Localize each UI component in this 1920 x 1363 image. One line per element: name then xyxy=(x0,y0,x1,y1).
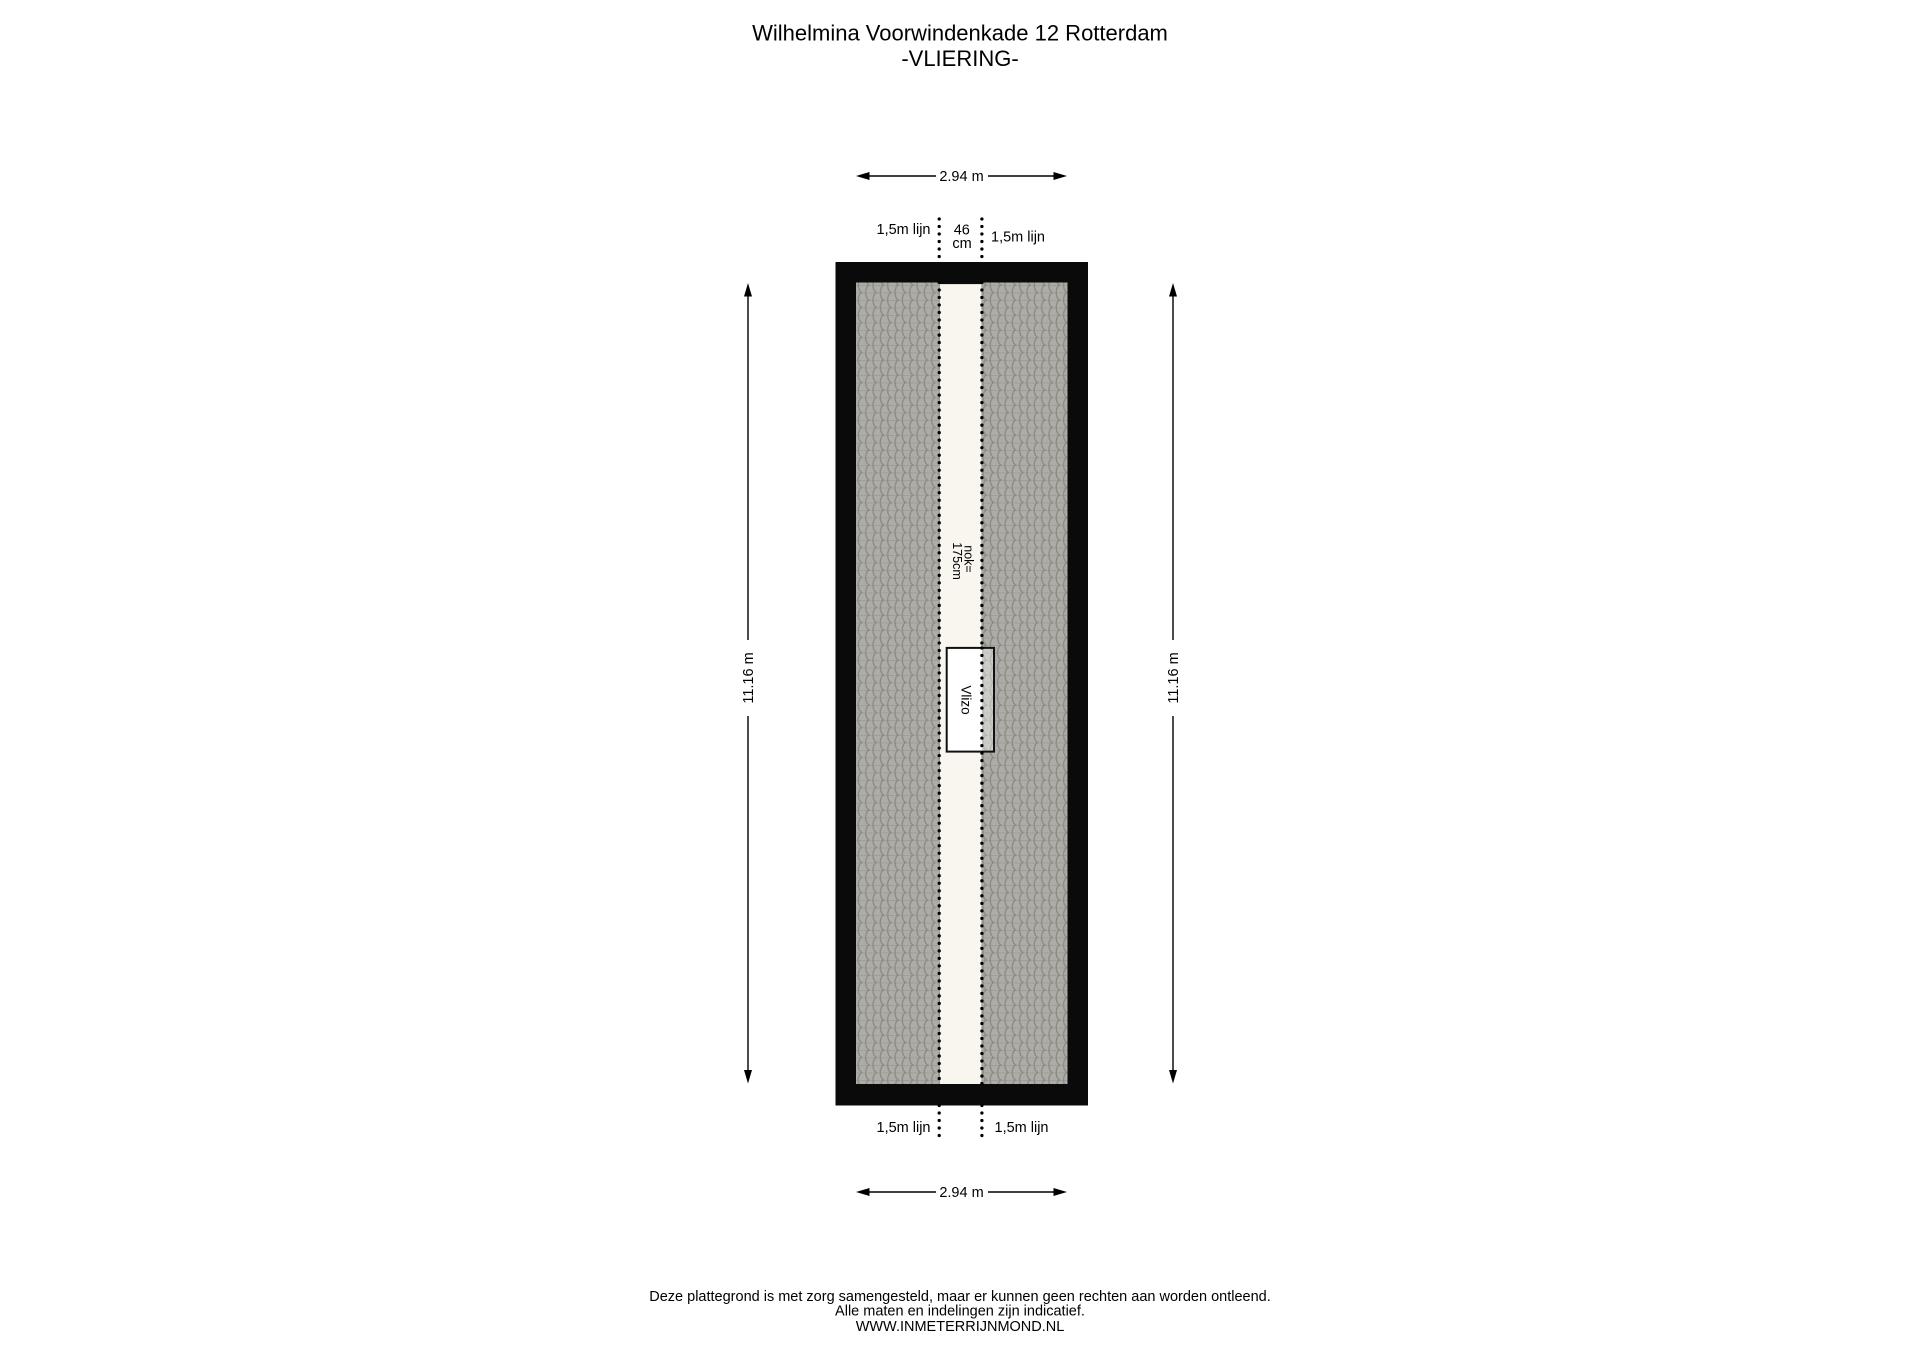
svg-text:11.16 m: 11.16 m xyxy=(1166,652,1182,703)
svg-text:cm: cm xyxy=(952,236,971,252)
svg-text:2.94 m: 2.94 m xyxy=(939,1185,983,1201)
svg-text:1,5m lijn: 1,5m lijn xyxy=(877,222,931,238)
svg-text:WWW.INMETERRIJNMOND.NL: WWW.INMETERRIJNMOND.NL xyxy=(856,1319,1065,1335)
svg-text:1,5m lijn: 1,5m lijn xyxy=(877,1120,931,1136)
svg-text:Wilhelmina Voorwindenkade 12 R: Wilhelmina Voorwindenkade 12 Rotterdam xyxy=(752,21,1168,46)
svg-text:-VLIERING-: -VLIERING- xyxy=(901,46,1018,71)
svg-text:1,5m lijn: 1,5m lijn xyxy=(995,1120,1049,1136)
svg-text:2.94 m: 2.94 m xyxy=(939,169,983,185)
svg-text:11.16 m: 11.16 m xyxy=(741,652,757,703)
svg-text:1,5m lijn: 1,5m lijn xyxy=(991,230,1045,246)
svg-text:Alle maten en indelingen zijn: Alle maten en indelingen zijn indicatief… xyxy=(835,1304,1085,1320)
svg-text:175cm: 175cm xyxy=(950,542,964,580)
svg-text:Vlizo: Vlizo xyxy=(959,685,974,714)
